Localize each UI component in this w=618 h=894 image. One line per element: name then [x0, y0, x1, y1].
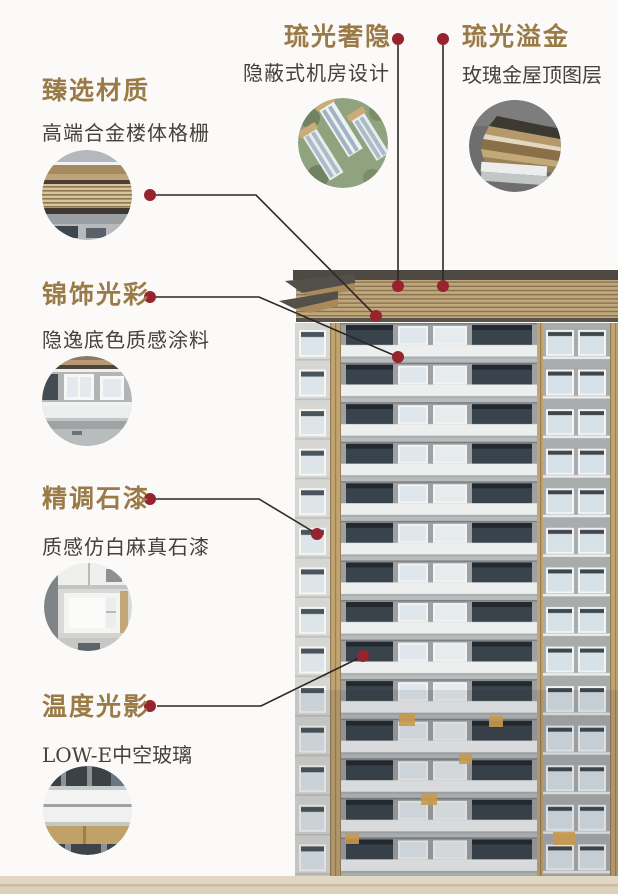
callout-dot: [392, 33, 404, 45]
ground-strip: [0, 876, 618, 894]
callout-title: 锦饰光彩: [42, 282, 210, 307]
callout-subtitle: 玫瑰金屋顶图层: [462, 65, 602, 85]
callout-hidden-room-sub: 隐蔽式机房设计: [243, 63, 390, 83]
callout-dot: [392, 351, 404, 363]
callout-title: 精调石漆: [42, 486, 210, 511]
callout-subtitle: 隐蔽式机房设计: [243, 63, 390, 83]
callout-title: 温度光影: [42, 694, 192, 719]
callout-low-e-glass: 温度光影 LOW-E中空玻璃: [42, 694, 192, 765]
callout-title: 臻选材质: [42, 78, 210, 103]
building-facade: [295, 323, 618, 877]
stone-paint-window-photo: [44, 563, 132, 651]
callout-dot: [392, 280, 404, 292]
callout-subtitle: 高端合金楼体格栅: [42, 123, 210, 143]
callout-materials: 臻选材质 高端合金楼体格栅: [42, 78, 210, 143]
alloy-grille-photo: [42, 150, 132, 240]
callout-hidden-room: 琉光奢隐: [284, 24, 392, 49]
callout-dot: [370, 310, 382, 322]
callout-dot: [144, 189, 156, 201]
callout-subtitle: 隐逸底色质感涂料: [42, 330, 210, 350]
callout-dot: [311, 528, 323, 540]
lower-floor-shading: [295, 690, 618, 877]
callout-dot: [437, 280, 449, 292]
facade-coating-photo: [42, 356, 132, 446]
callout-subtitle: LOW-E中空玻璃: [42, 745, 192, 765]
callout-subtitle: 质感仿白麻真石漆: [42, 537, 210, 557]
callout-stone-paint: 精调石漆 质感仿白麻真石漆: [42, 486, 210, 557]
callout-dot: [357, 650, 369, 662]
callout-gold-roof: 琉光溢金 玫瑰金屋顶图层: [462, 24, 602, 85]
aerial-towers-photo: [298, 98, 388, 188]
roof-grille: [279, 270, 618, 322]
callout-title: 琉光溢金: [462, 24, 602, 49]
callout-coating: 锦饰光彩 隐逸底色质感涂料: [42, 282, 210, 350]
rose-gold-roof-photo: [469, 100, 561, 192]
callout-title: 琉光奢隐: [284, 24, 392, 49]
low-e-glass-photo: [43, 766, 132, 855]
callout-dot: [437, 33, 449, 45]
